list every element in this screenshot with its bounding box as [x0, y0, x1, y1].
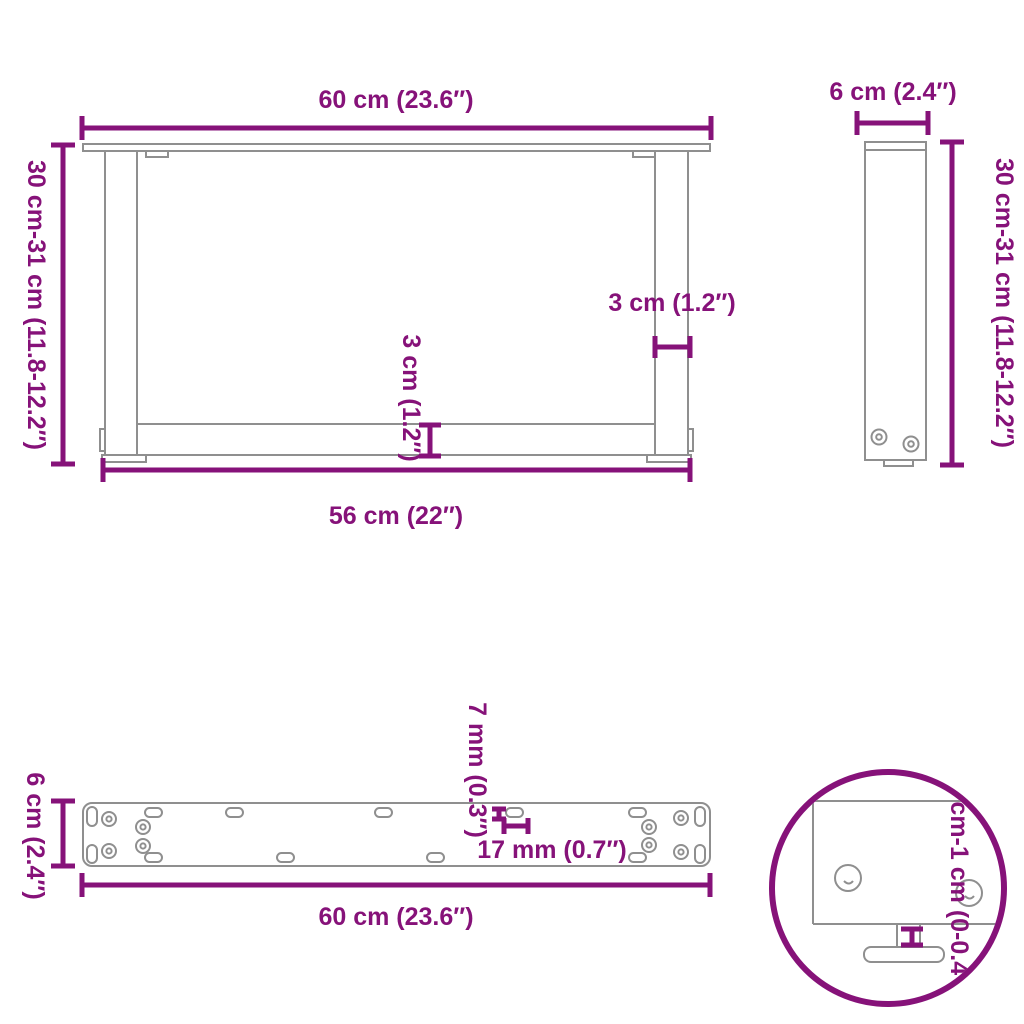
side-view: 6 cm (2.4″) 30 cm-31 cm (11.8-12.2″)	[829, 78, 1018, 466]
dim-label-front-bottom-width: 56 cm (22″)	[329, 502, 463, 530]
dimension-side-depth: 6 cm (2.4″)	[829, 78, 956, 135]
dim-label-side-depth: 6 cm (2.4″)	[829, 78, 956, 106]
detail-foot-pad	[864, 947, 944, 962]
dim-label-slot-length: 17 mm (0.7″)	[477, 836, 627, 864]
dim-label-plate-depth: 6 cm (2.4″)	[21, 772, 49, 899]
dim-label-plate-width: 60 cm (23.6″)	[318, 903, 473, 931]
dimension-slot-width: 7 mm (0.3″)	[463, 702, 506, 838]
side-leg-body	[865, 142, 926, 460]
front-view: 60 cm (23.6″) 30 cm-31 cm (11.8-12.2″) 3…	[22, 86, 736, 530]
dim-label-front-leg-thickness: 3 cm (1.2″)	[608, 289, 735, 317]
front-right-foot	[647, 455, 691, 462]
dimension-plate-width: 60 cm (23.6″)	[82, 873, 710, 931]
dim-label-front-top-width: 60 cm (23.6″)	[318, 86, 473, 114]
front-top-plate	[83, 144, 710, 151]
front-left-leg	[105, 151, 137, 455]
front-crossbar	[137, 424, 655, 455]
dimension-drawing: 60 cm (23.6″) 30 cm-31 cm (11.8-12.2″) 3…	[0, 0, 1024, 1024]
dim-label-foot-adjustment: 0 cm-1 cm (0-0.4″)	[945, 781, 973, 996]
dim-label-front-left-height: 30 cm-31 cm (11.8-12.2″)	[22, 160, 50, 450]
dimension-plate-depth: 6 cm (2.4″)	[21, 772, 75, 899]
diagram-canvas: 60 cm (23.6″) 30 cm-31 cm (11.8-12.2″) 3…	[0, 0, 1024, 1024]
front-right-side-tab	[688, 429, 693, 451]
dimension-side-height: 30 cm-31 cm (11.8-12.2″)	[940, 142, 1018, 465]
front-left-side-tab	[100, 429, 105, 451]
dim-label-side-height: 30 cm-31 cm (11.8-12.2″)	[990, 158, 1018, 448]
front-left-bracket-tab	[146, 151, 168, 157]
dimension-front-left-height: 30 cm-31 cm (11.8-12.2″)	[22, 145, 75, 464]
dimension-front-top-width: 60 cm (23.6″)	[82, 86, 711, 140]
dim-label-front-crossbar-thickness: 3 cm (1.2″)	[397, 334, 425, 461]
plate-top-view: 6 cm (2.4″) 60 cm (23.6″) 7 mm (0.3″) 17…	[21, 702, 710, 931]
front-right-bracket-tab	[633, 151, 655, 157]
front-left-foot	[102, 455, 146, 462]
detail-view: 0 cm-1 cm (0-0.4″)	[772, 770, 1005, 1004]
dimension-front-bottom-width: 56 cm (22″)	[103, 458, 690, 530]
detail-screw	[835, 865, 861, 891]
dim-label-slot-width: 7 mm (0.3″)	[463, 702, 491, 838]
side-foot	[884, 460, 913, 466]
